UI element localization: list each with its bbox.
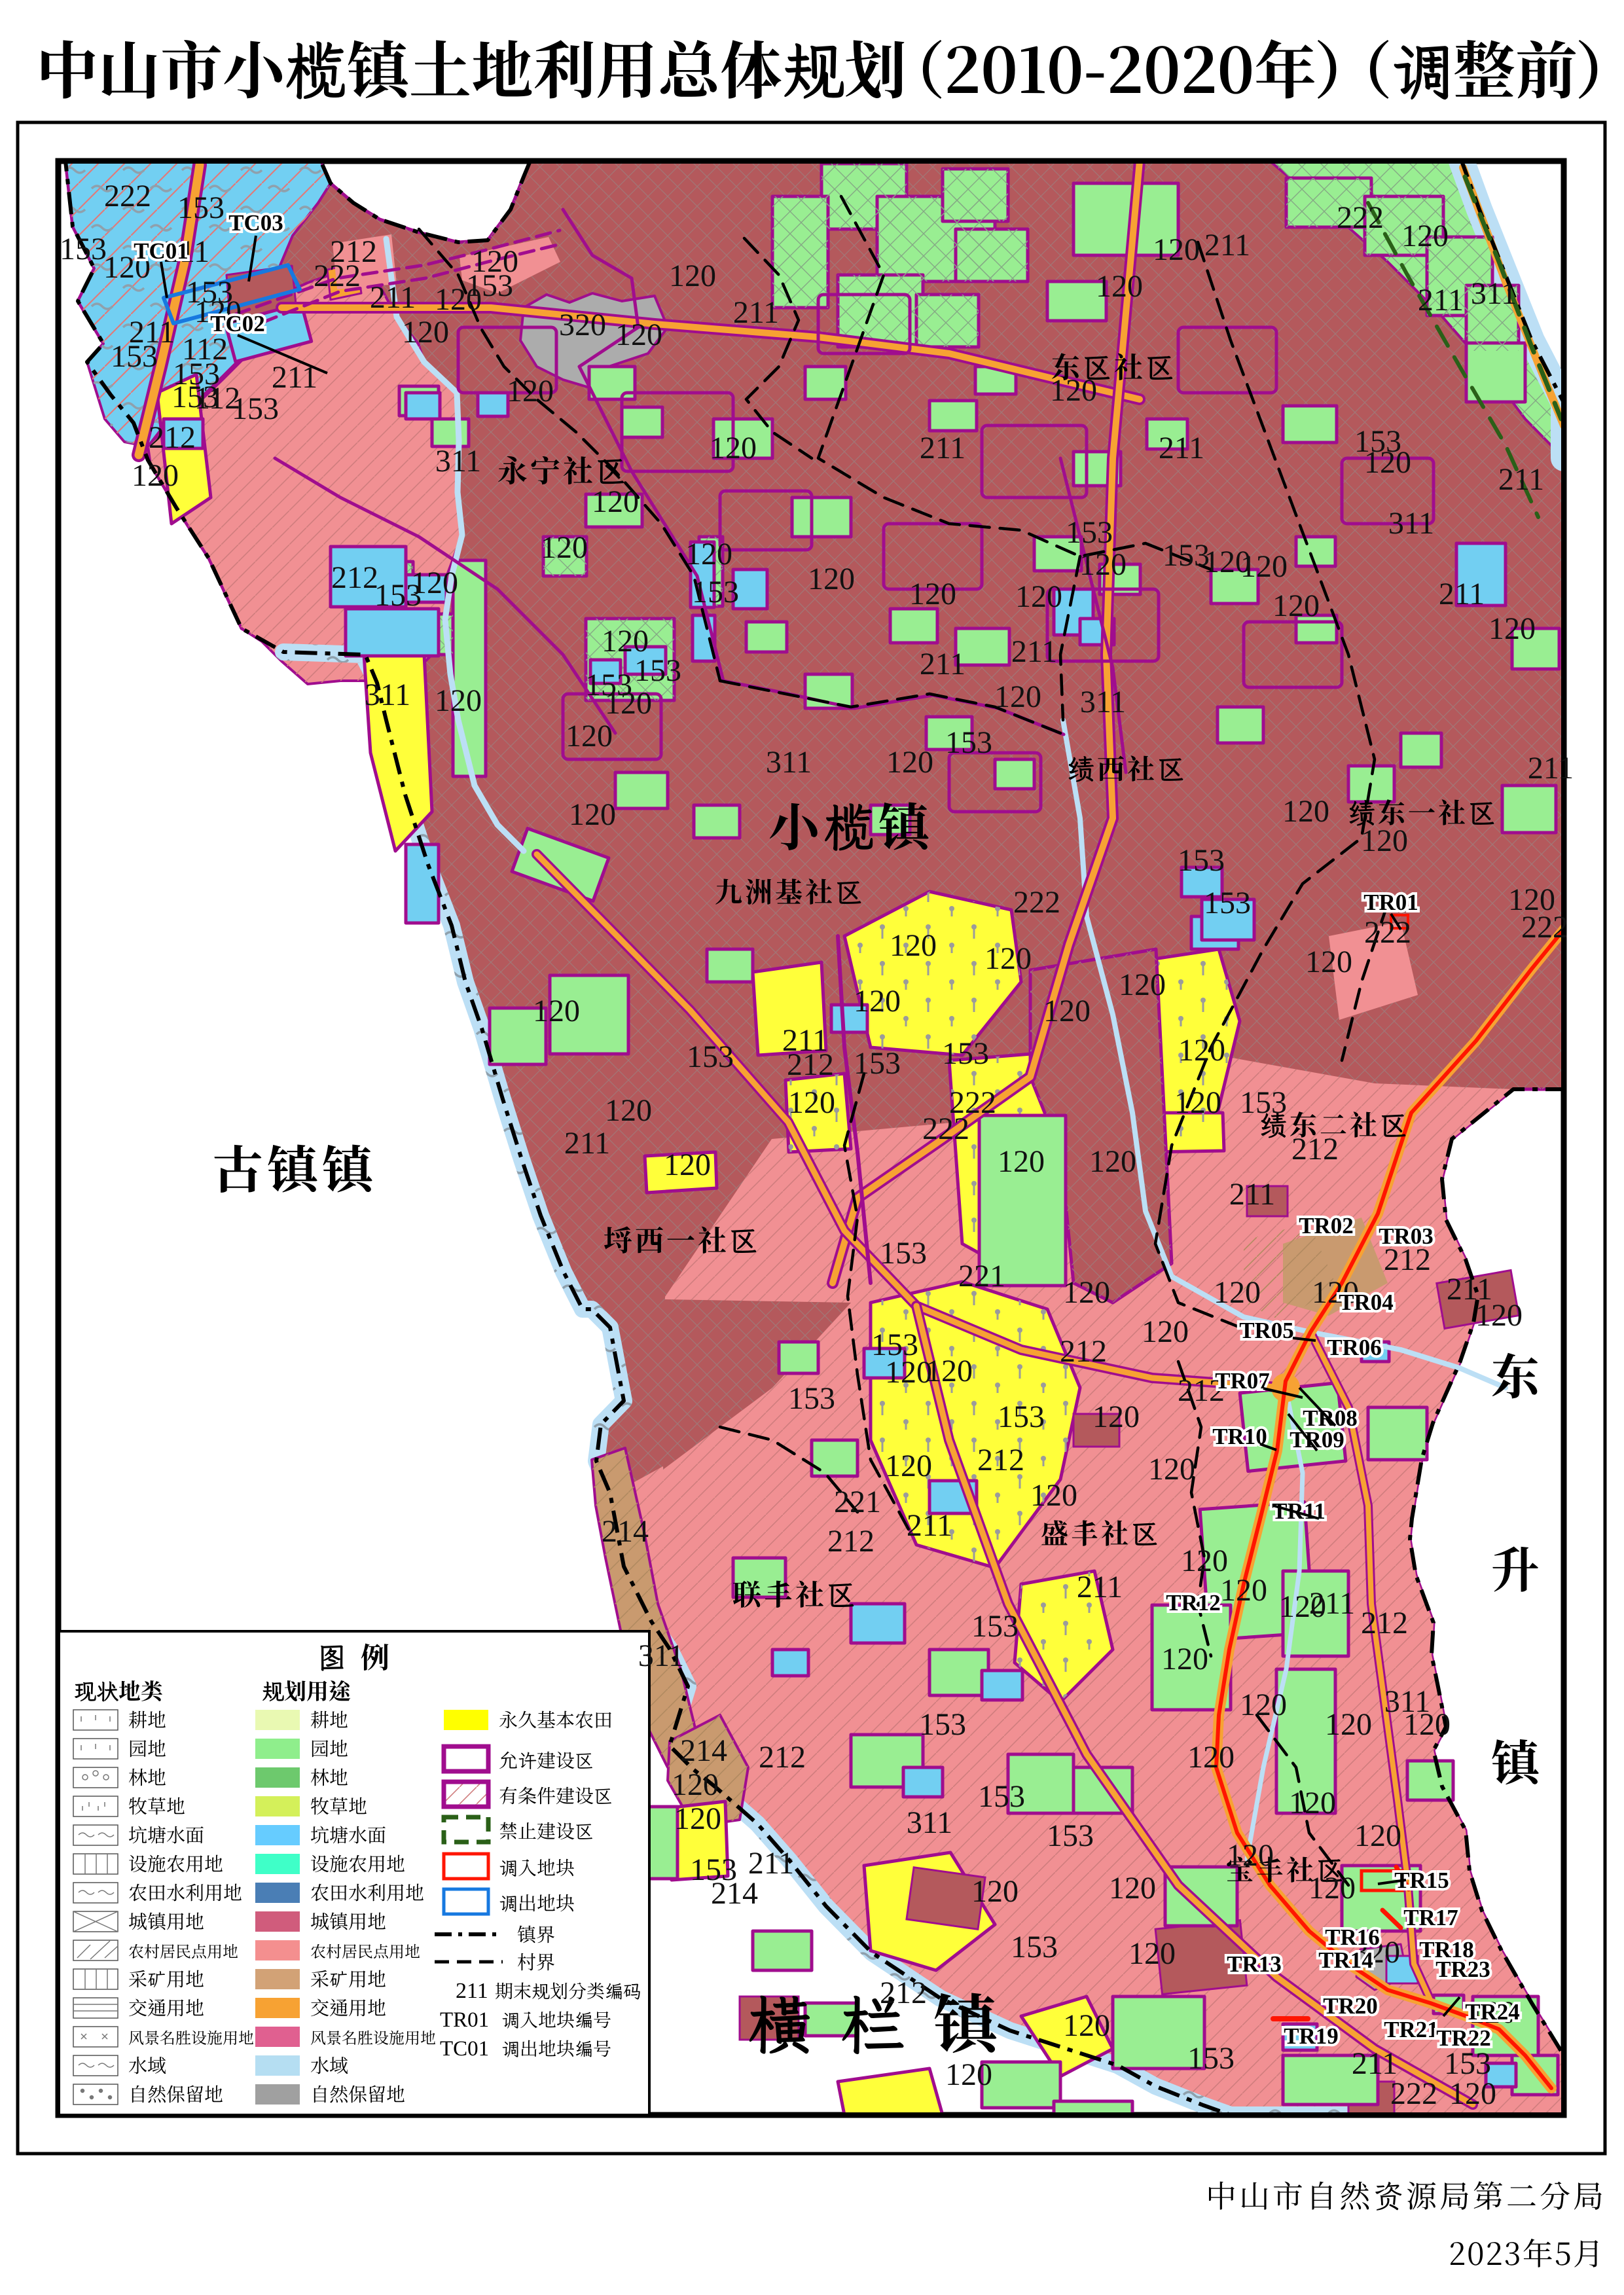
- svg-text:120: 120: [1128, 1936, 1176, 1971]
- svg-text:120: 120: [1508, 882, 1555, 917]
- svg-text:TR07: TR07: [1215, 1368, 1270, 1394]
- svg-text:120: 120: [1096, 269, 1143, 304]
- svg-text:120: 120: [533, 994, 580, 1028]
- svg-text:120: 120: [1109, 1871, 1156, 1906]
- svg-text:120: 120: [1079, 547, 1127, 582]
- svg-text:212: 212: [977, 1443, 1024, 1477]
- svg-text:TR13: TR13: [1227, 1951, 1282, 1977]
- svg-text:153: 153: [788, 1381, 835, 1416]
- svg-text:120: 120: [685, 537, 732, 571]
- svg-text:120: 120: [592, 484, 639, 519]
- svg-text:211: 211: [1159, 431, 1204, 465]
- svg-text:120: 120: [1308, 1871, 1356, 1906]
- svg-text:212: 212: [880, 1976, 927, 2010]
- svg-text:311: 311: [766, 745, 812, 780]
- svg-text:153: 153: [998, 1400, 1045, 1434]
- svg-text:TR22: TR22: [1436, 2025, 1491, 2051]
- svg-text:120: 120: [615, 317, 662, 352]
- svg-text:120: 120: [1187, 1740, 1235, 1775]
- svg-text:120: 120: [788, 1085, 835, 1120]
- svg-text:120: 120: [1220, 1573, 1267, 1608]
- svg-text:120: 120: [1401, 219, 1449, 253]
- svg-text:222: 222: [1390, 2076, 1437, 2111]
- svg-text:120: 120: [1063, 1275, 1110, 1310]
- svg-text:153: 153: [1163, 538, 1210, 573]
- svg-text:120: 120: [569, 797, 616, 832]
- svg-text:212: 212: [759, 1740, 806, 1775]
- svg-text:311: 311: [638, 1638, 684, 1673]
- svg-text:120: 120: [1174, 1085, 1221, 1120]
- svg-text:120: 120: [1089, 1144, 1136, 1179]
- svg-text:153: 153: [1047, 1818, 1094, 1853]
- svg-text:211: 211: [1077, 1570, 1123, 1604]
- svg-text:212: 212: [827, 1524, 875, 1559]
- svg-text:TR02: TR02: [1299, 1213, 1354, 1238]
- svg-text:311: 311: [1384, 1684, 1430, 1719]
- svg-text:153: 153: [978, 1779, 1025, 1814]
- svg-text:120: 120: [1272, 588, 1320, 623]
- svg-text:211: 211: [1204, 228, 1250, 262]
- svg-text:120: 120: [1092, 1400, 1140, 1434]
- svg-text:212: 212: [1361, 1606, 1408, 1640]
- svg-text:120: 120: [926, 1354, 973, 1388]
- svg-text:TR21: TR21: [1384, 2017, 1439, 2042]
- svg-text:TR11: TR11: [1272, 1498, 1326, 1524]
- svg-text:TR06: TR06: [1327, 1335, 1382, 1360]
- svg-text:120: 120: [1142, 1314, 1189, 1349]
- svg-text:TR20: TR20: [1323, 1993, 1378, 2019]
- svg-text:120: 120: [945, 2057, 992, 2092]
- svg-text:TR16: TR16: [1325, 1925, 1380, 1950]
- svg-text:212: 212: [149, 420, 196, 455]
- svg-text:120: 120: [1240, 549, 1288, 584]
- svg-text:221: 221: [834, 1485, 881, 1519]
- svg-text:120: 120: [1153, 232, 1200, 267]
- svg-text:311: 311: [1471, 276, 1517, 311]
- svg-text:222: 222: [1364, 915, 1411, 950]
- svg-text:120: 120: [1030, 1478, 1077, 1513]
- svg-text:153: 153: [687, 1039, 734, 1074]
- svg-text:211: 211: [456, 1979, 488, 2003]
- svg-text:120: 120: [1475, 1298, 1523, 1333]
- svg-text:214: 214: [602, 1514, 649, 1549]
- svg-text:211: 211: [370, 280, 416, 315]
- svg-text:TR23: TR23: [1435, 1957, 1490, 1982]
- svg-text:214: 214: [711, 1876, 758, 1911]
- svg-text:212: 212: [1060, 1334, 1107, 1369]
- svg-text:311: 311: [907, 1805, 952, 1840]
- svg-text:153: 153: [232, 391, 279, 426]
- svg-text:311: 311: [1080, 685, 1126, 719]
- svg-text:120: 120: [1489, 611, 1536, 646]
- svg-text:120: 120: [886, 745, 933, 780]
- svg-text:120: 120: [971, 1874, 1019, 1909]
- svg-text:120: 120: [1240, 1688, 1287, 1722]
- svg-text:120: 120: [909, 577, 956, 611]
- svg-text:211: 211: [1229, 1177, 1275, 1212]
- svg-text:153: 153: [1178, 843, 1225, 878]
- svg-text:211: 211: [1011, 634, 1057, 669]
- svg-text:TC01: TC01: [440, 2037, 489, 2061]
- svg-text:120: 120: [411, 566, 458, 600]
- svg-text:120: 120: [1015, 579, 1062, 614]
- svg-text:TR05: TR05: [1239, 1318, 1294, 1343]
- svg-text:311: 311: [1388, 506, 1434, 541]
- svg-text:120: 120: [669, 259, 716, 293]
- svg-text:221: 221: [958, 1259, 1005, 1293]
- svg-text:153: 153: [634, 653, 681, 688]
- svg-text:TC03: TC03: [228, 210, 283, 236]
- svg-text:120: 120: [1043, 994, 1091, 1028]
- svg-text:120: 120: [672, 1767, 719, 1802]
- svg-text:212: 212: [1291, 1132, 1339, 1166]
- svg-text:TR10: TR10: [1212, 1424, 1267, 1449]
- svg-text:120: 120: [885, 1355, 932, 1390]
- svg-text:120: 120: [1227, 1838, 1274, 1873]
- svg-text:120: 120: [1305, 945, 1352, 979]
- svg-text:120: 120: [1050, 373, 1097, 408]
- svg-text:211: 211: [920, 431, 965, 465]
- svg-text:120: 120: [605, 1093, 652, 1128]
- svg-text:TR01: TR01: [440, 2008, 489, 2032]
- svg-text:153: 153: [1240, 1085, 1287, 1120]
- svg-text:222: 222: [104, 179, 151, 213]
- svg-text:120: 120: [674, 1801, 721, 1836]
- svg-text:153: 153: [177, 190, 225, 225]
- svg-text:211: 211: [564, 1126, 610, 1161]
- svg-text:222: 222: [949, 1085, 996, 1120]
- svg-text:120: 120: [1282, 794, 1329, 829]
- svg-text:120: 120: [507, 374, 554, 408]
- svg-text:120: 120: [541, 530, 588, 565]
- svg-text:120: 120: [984, 941, 1032, 976]
- svg-text:211: 211: [1352, 2046, 1398, 2081]
- svg-text:120: 120: [808, 562, 855, 596]
- svg-text:222: 222: [314, 259, 361, 293]
- svg-text:TR19: TR19: [1284, 2023, 1339, 2049]
- svg-text:311: 311: [365, 678, 410, 712]
- svg-text:153: 153: [1187, 2041, 1235, 2076]
- svg-text:211: 211: [1498, 462, 1544, 497]
- svg-text:120: 120: [1364, 445, 1411, 480]
- svg-text:153: 153: [60, 232, 107, 266]
- svg-text:311: 311: [435, 444, 481, 479]
- svg-text:120: 120: [854, 984, 901, 1019]
- svg-text:120: 120: [1119, 967, 1166, 1002]
- svg-text:222: 222: [1013, 885, 1060, 920]
- svg-text:TR01: TR01: [1363, 890, 1418, 915]
- svg-text:211: 211: [1309, 1586, 1355, 1621]
- svg-text:153: 153: [466, 268, 513, 303]
- svg-text:211: 211: [1418, 283, 1464, 317]
- svg-text:153: 153: [111, 339, 158, 374]
- svg-text:TR04: TR04: [1339, 1290, 1394, 1315]
- svg-text:120: 120: [994, 679, 1041, 714]
- svg-text:211: 211: [1528, 751, 1574, 786]
- svg-text:120: 120: [1214, 1275, 1261, 1310]
- svg-text:120: 120: [435, 683, 482, 718]
- svg-text:120: 120: [1148, 1452, 1195, 1487]
- svg-text:120: 120: [885, 1449, 932, 1483]
- svg-text:120: 120: [890, 928, 937, 963]
- svg-text:TR12: TR12: [1166, 1590, 1221, 1616]
- svg-text:120: 120: [1449, 2076, 1496, 2111]
- svg-text:120: 120: [402, 315, 449, 350]
- svg-text:120: 120: [1161, 1642, 1208, 1676]
- svg-text:153: 153: [880, 1236, 927, 1271]
- svg-text:120: 120: [1178, 1033, 1225, 1068]
- svg-text:153: 153: [971, 1609, 1019, 1644]
- svg-text:TR14: TR14: [1318, 1947, 1373, 1973]
- svg-text:120: 120: [132, 458, 179, 493]
- svg-text:153: 153: [945, 725, 992, 760]
- svg-text:120: 120: [1361, 823, 1408, 858]
- svg-text:120: 120: [605, 686, 652, 721]
- svg-text:120: 120: [1325, 1707, 1372, 1742]
- svg-text:222: 222: [1337, 200, 1384, 235]
- svg-text:153: 153: [1066, 515, 1113, 550]
- svg-text:211: 211: [1439, 577, 1485, 611]
- svg-text:153: 153: [1011, 1930, 1058, 1964]
- svg-text:120: 120: [1063, 2008, 1110, 2043]
- svg-text:TC01: TC01: [134, 238, 189, 264]
- svg-text:153: 153: [942, 1036, 989, 1071]
- svg-text:212: 212: [331, 560, 378, 595]
- svg-text:211: 211: [907, 1508, 952, 1543]
- svg-text:120: 120: [664, 1147, 711, 1182]
- svg-text:212: 212: [787, 1047, 834, 1082]
- svg-text:120: 120: [998, 1144, 1045, 1179]
- svg-text:120: 120: [1289, 1786, 1336, 1820]
- svg-text:120: 120: [1354, 1818, 1401, 1853]
- svg-text:120: 120: [710, 431, 757, 465]
- svg-text:153: 153: [1204, 886, 1251, 920]
- svg-text:TR17: TR17: [1403, 1905, 1458, 1930]
- svg-text:TR24: TR24: [1465, 1999, 1520, 2025]
- svg-text:320: 320: [559, 308, 606, 342]
- svg-text:211: 211: [733, 295, 779, 330]
- svg-text:153: 153: [854, 1046, 901, 1081]
- svg-text:214: 214: [680, 1733, 727, 1768]
- svg-text:153: 153: [692, 575, 739, 609]
- svg-text:153: 153: [919, 1707, 966, 1742]
- svg-text:211: 211: [920, 647, 965, 681]
- svg-text:TR03: TR03: [1379, 1223, 1434, 1249]
- svg-text:120: 120: [566, 719, 613, 753]
- svg-text:TC02: TC02: [210, 311, 265, 336]
